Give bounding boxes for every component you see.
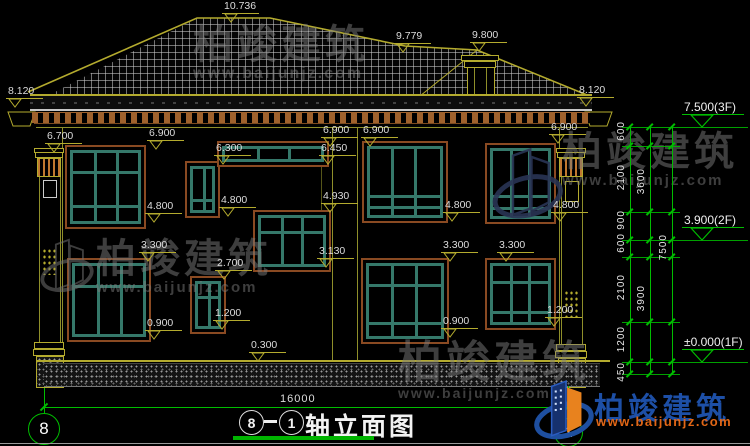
- dim-chain-value: 3900: [636, 285, 647, 311]
- watermark-text: 柏竣建筑: [562, 131, 738, 173]
- dim-chain-rule: [622, 127, 748, 128]
- watermark: 柏竣建筑 www.baijunjz.com: [562, 131, 738, 189]
- pilaster-base: [555, 351, 587, 358]
- window-1f-small: [190, 276, 226, 334]
- bottom-rule: [0, 443, 750, 444]
- pilaster-ornament: [42, 248, 57, 275]
- floor-level-triangle: [690, 114, 714, 128]
- floor-level-value: ±0.000(1F): [684, 335, 743, 349]
- wall-top-line: [36, 127, 588, 128]
- pilaster-ornament: [564, 290, 579, 317]
- level-marker-value: 9.779: [396, 30, 422, 42]
- window-2f-center: [362, 141, 448, 223]
- dim-chain-tick: [626, 142, 633, 149]
- overall-dim-text: 16000: [280, 393, 316, 405]
- dim-chain-rule: [622, 362, 748, 363]
- roof-tile-hatch: [28, 12, 594, 102]
- level-marker-value: 6.900: [363, 124, 389, 136]
- pilaster-panel: [43, 180, 57, 198]
- level-marker-line: [443, 212, 480, 213]
- cornice-dashes: [30, 102, 592, 104]
- level-marker-triangle: [147, 213, 161, 223]
- window-2f-left: [65, 145, 146, 229]
- level-marker-line: [441, 252, 478, 253]
- level-marker-triangle: [221, 207, 235, 217]
- level-marker-value: 4.930: [323, 190, 349, 202]
- watermark-url: www.baijunjz.com: [562, 173, 738, 189]
- dim-chain-tick: [626, 208, 633, 215]
- dim-chain-tick: [626, 318, 633, 325]
- dim-chain-rule: [622, 322, 680, 323]
- axis-bubble-8: 8: [28, 413, 60, 445]
- title-dash: [264, 420, 277, 423]
- window-2f-small: [185, 161, 220, 218]
- pilaster-base: [33, 349, 65, 356]
- level-marker-line: [139, 252, 176, 253]
- level-marker-value: 3.300: [443, 239, 469, 251]
- level-marker-line: [147, 140, 184, 141]
- dim-chain-rule: [622, 240, 748, 241]
- pilaster-capital: [559, 158, 583, 177]
- brand-logo-url: www.baijunjz.com: [596, 414, 732, 429]
- dim-chain-tick: [626, 253, 633, 260]
- dim-chain-value: 900: [616, 210, 627, 230]
- level-marker-line: [219, 207, 256, 208]
- level-marker-line: [321, 137, 358, 138]
- dim-chain-tick: [646, 208, 653, 215]
- dentil-row: [32, 112, 590, 123]
- window-1f-center: [361, 258, 449, 344]
- level-marker-triangle: [149, 140, 163, 150]
- level-marker-line: [394, 43, 431, 44]
- dim-chain-tick: [646, 123, 653, 130]
- level-marker-line: [470, 42, 507, 43]
- pilaster-shaft: [561, 177, 583, 354]
- dim-chain-rule: [622, 257, 680, 258]
- floor-level-line: [682, 227, 744, 228]
- dim-chain-line: [630, 127, 631, 374]
- window-1f-right: [485, 258, 556, 330]
- pilaster-base: [556, 344, 586, 351]
- title-axis-8: 8: [239, 410, 264, 435]
- dim-chain-value: 1200: [616, 326, 627, 352]
- level-marker-value: 4.800: [221, 194, 247, 206]
- terrace-line: [36, 360, 610, 362]
- window-2f-strip: [217, 141, 329, 167]
- dim-chain-tick: [668, 253, 675, 260]
- floor-level-value: 7.500(3F): [684, 100, 736, 114]
- level-marker-value: 6.900: [323, 124, 349, 136]
- level-marker-line: [145, 213, 182, 214]
- dim-chain-tick: [646, 318, 653, 325]
- dim-chain-tick: [668, 318, 675, 325]
- floor-level-value: 3.900(2F): [684, 213, 736, 227]
- dim-chain-value: 2100: [616, 274, 627, 300]
- dim-chain-value: 2100: [616, 164, 627, 190]
- level-marker-line: [249, 352, 286, 353]
- ground-bottom-line: [44, 386, 600, 387]
- dim-chain-tick: [646, 236, 653, 243]
- wall-joint: [357, 128, 358, 362]
- level-marker-line: [549, 134, 586, 135]
- brand-logo-icon: [534, 374, 596, 446]
- level-marker-value: 4.800: [147, 200, 173, 212]
- dim-chain-line: [650, 127, 651, 374]
- wall-left-edge: [62, 128, 63, 362]
- brand-logo: 柏竣建筑 www.baijunjz.com: [534, 372, 750, 442]
- level-marker-value: 3.300: [499, 239, 525, 251]
- extension-line-left: [44, 388, 45, 413]
- dim-chain-tick: [668, 123, 675, 130]
- level-marker-value: 0.300: [251, 339, 277, 351]
- level-marker-value: 4.800: [445, 199, 471, 211]
- dim-chain-rule: [622, 212, 680, 213]
- floor-level-triangle: [690, 349, 714, 363]
- level-marker-value: 10.736: [224, 0, 256, 12]
- floor-level-line: [682, 114, 744, 115]
- dim-chain-value: 7500: [658, 234, 669, 260]
- pilaster-panel: [565, 181, 579, 202]
- floor-level-line: [682, 349, 744, 350]
- title-underline: [233, 436, 374, 440]
- wall-joint: [332, 128, 333, 362]
- level-marker-value: 3.300: [141, 239, 167, 251]
- dim-chain-tick: [668, 358, 675, 365]
- dim-chain-tick: [668, 208, 675, 215]
- dim-chain-value: 3600: [636, 168, 647, 194]
- dim-chain-value: 600: [616, 233, 627, 253]
- cornice-brown-line: [34, 123, 588, 124]
- level-marker-value: 6.700: [47, 130, 73, 142]
- dim-chain-tick: [668, 142, 675, 149]
- cad-elevation-canvas: 16000 8 1 8 1 轴立面图 柏竣建筑 www.baijunjz.com…: [0, 0, 750, 446]
- ground-hatch: [44, 363, 600, 387]
- window-2f-right: [485, 143, 556, 224]
- chimney-cap: [464, 61, 496, 68]
- level-marker-line: [45, 143, 82, 144]
- dim-chain-value: 600: [616, 121, 627, 141]
- pilaster-capital: [37, 158, 61, 177]
- dim-chain-tick: [626, 123, 633, 130]
- level-marker-line: [321, 203, 358, 204]
- window-stair: [253, 210, 331, 272]
- level-marker-triangle: [8, 98, 22, 108]
- dim-chain-tick: [646, 142, 653, 149]
- level-marker-value: 2.700: [217, 257, 243, 269]
- title-axis-8-digit: 8: [248, 415, 256, 431]
- dim-chain-tick: [646, 358, 653, 365]
- dim-chain-rule: [622, 146, 680, 147]
- title-axis-1-digit: 1: [288, 415, 296, 431]
- level-marker-value: 6.900: [149, 127, 175, 139]
- pilaster-base: [34, 342, 64, 349]
- dim-chain-line: [672, 127, 673, 374]
- dim-chain-tick: [668, 236, 675, 243]
- floor-level-triangle: [690, 227, 714, 241]
- dim-chain-tick: [626, 358, 633, 365]
- axis-bubble-8-label: 8: [39, 419, 48, 439]
- level-marker-value: 9.800: [472, 29, 498, 41]
- title-axis-1: 1: [279, 410, 304, 435]
- window-1f-left: [67, 258, 151, 342]
- cornice-white-line: [30, 109, 592, 111]
- dim-chain-tick: [626, 236, 633, 243]
- level-marker-line: [215, 270, 252, 271]
- level-marker-line: [497, 252, 534, 253]
- level-marker-line: [361, 137, 398, 138]
- level-marker-line: [222, 13, 259, 14]
- dim-chain-tick: [646, 253, 653, 260]
